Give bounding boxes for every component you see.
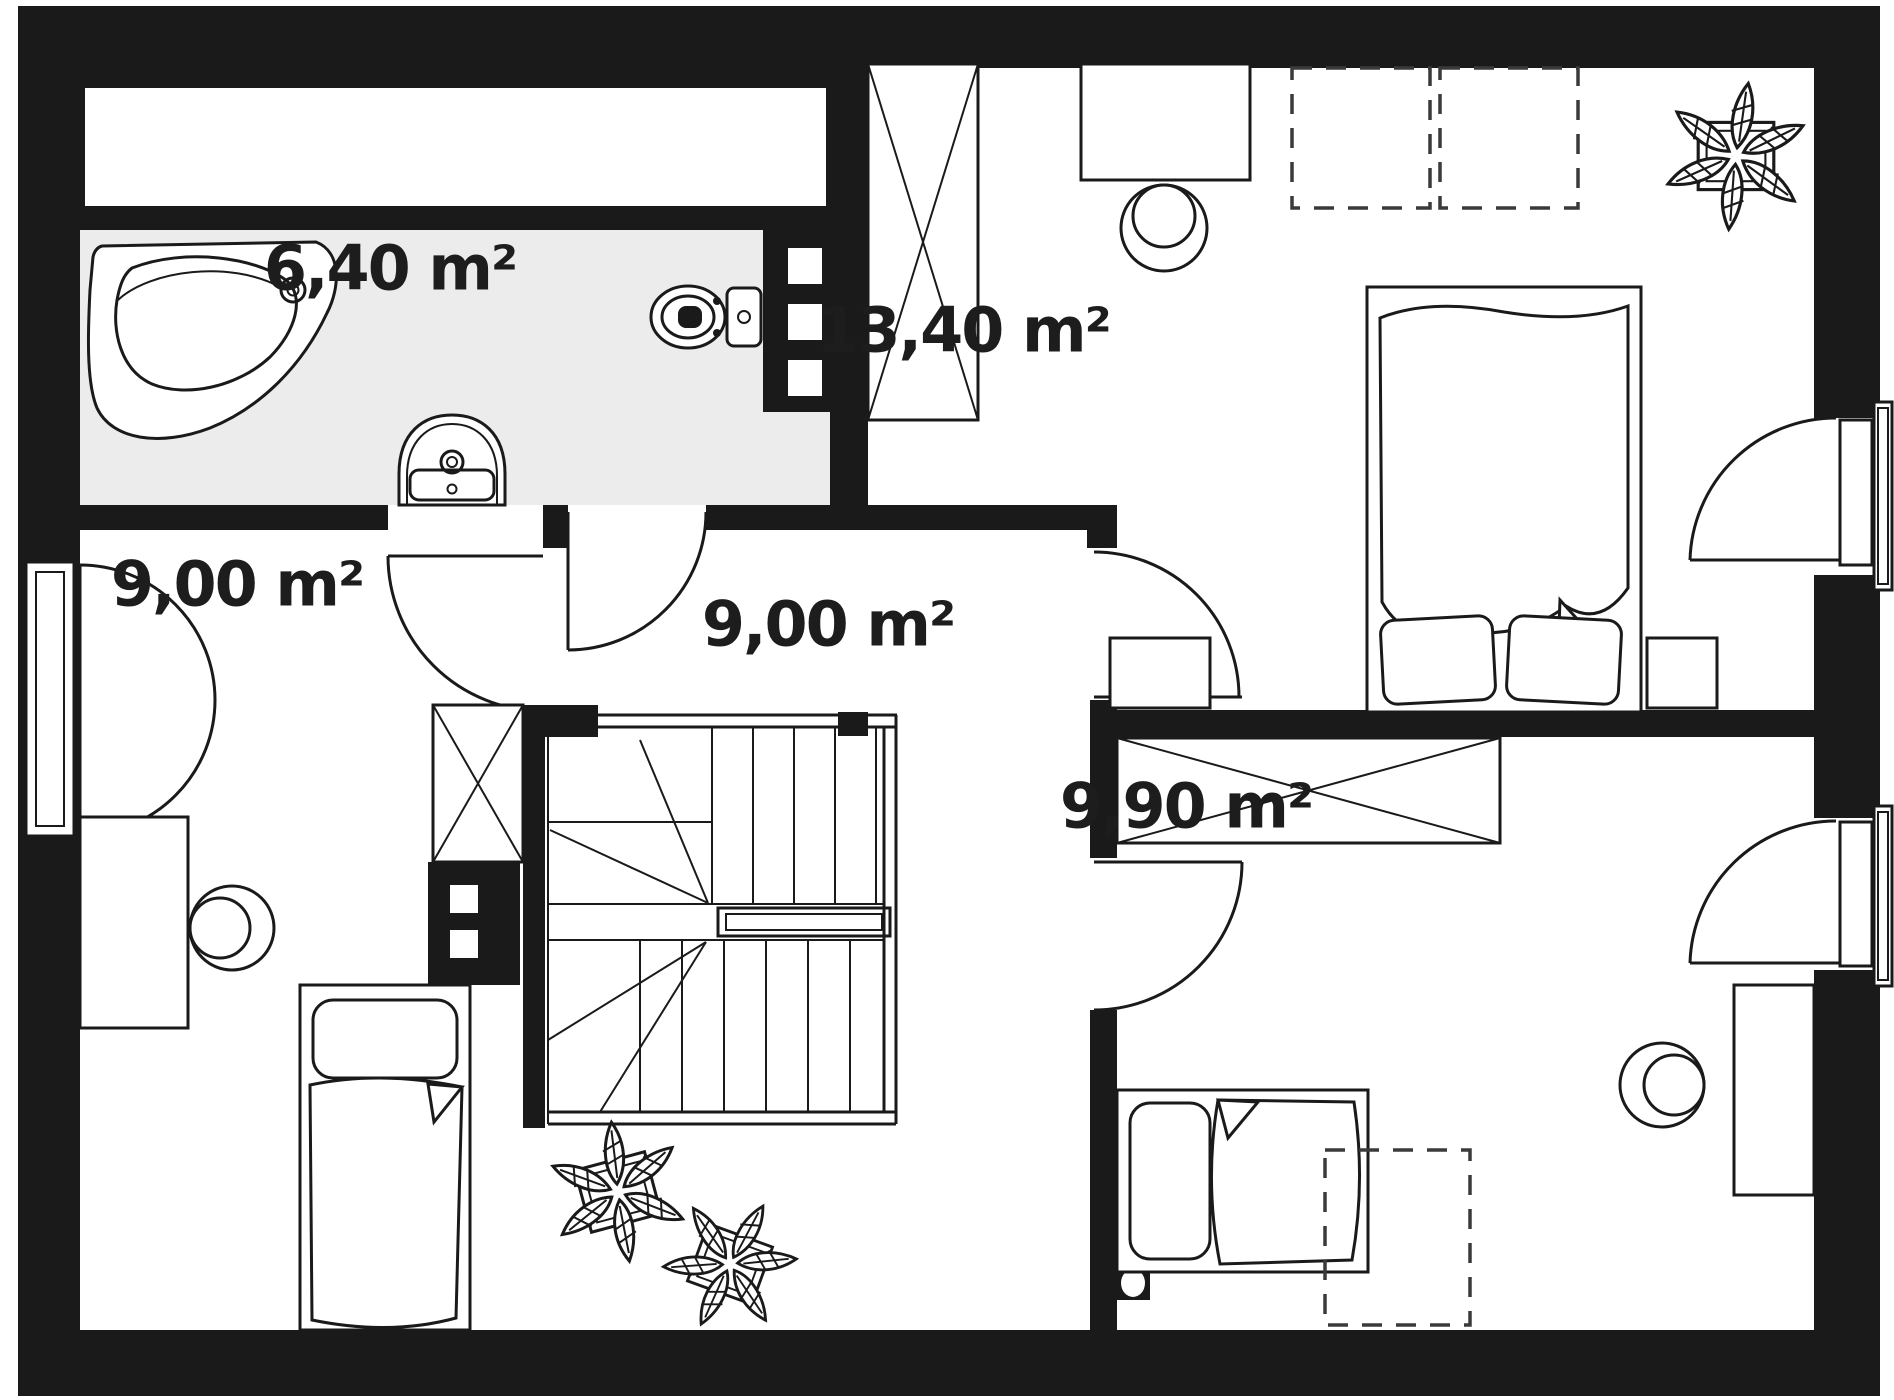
sink-icon	[399, 415, 505, 505]
room-area-label-bathroom: 6,40 m²	[264, 232, 516, 305]
floor-plan: 6,40 m² 13,40 m² 9,00 m² 9,00 m² 9,90 m²	[0, 0, 1894, 1400]
wall-jamb-2	[1087, 530, 1117, 548]
desk-left-room	[80, 817, 188, 1028]
nightstand-right	[1647, 638, 1717, 708]
wardrobe-bedroom-top	[868, 64, 978, 420]
desk-bedroom-top	[1081, 64, 1250, 180]
wall-jamb-1	[543, 505, 568, 548]
wall-hall-right-b	[1090, 1010, 1117, 1330]
wall-stair-side	[523, 705, 545, 1128]
wall-bottom	[18, 1330, 1880, 1396]
double-bed	[1367, 287, 1641, 712]
single-bed-left	[300, 985, 470, 1330]
room-area-label-bedroom-bottom: 9,90 m²	[1060, 770, 1312, 843]
skylight-dashed-1	[1292, 68, 1430, 208]
plant-under-stairs-1	[534, 1106, 701, 1277]
door-left-room	[388, 556, 543, 711]
chair-bedroom-bottom	[1620, 1043, 1704, 1127]
stair-newel	[838, 712, 868, 736]
room-area-label-bedroom-top: 13,40 m²	[816, 294, 1109, 367]
wall-right-lower	[1814, 970, 1880, 1396]
window-bedroom-bottom	[1690, 806, 1892, 986]
window-bedroom-top	[1690, 402, 1892, 590]
toilet-icon	[651, 286, 761, 348]
door-bathroom	[568, 512, 706, 650]
door-bedroom-bottom	[1094, 862, 1242, 1010]
nightstand-left	[1110, 638, 1210, 708]
wall-right-upper	[1814, 6, 1880, 418]
wardrobe-left-room	[433, 705, 523, 862]
chimney	[428, 862, 520, 985]
floor-plan-drawing	[0, 0, 1894, 1400]
staircase	[548, 712, 897, 1124]
wall-bedrooms-divider	[1117, 710, 1814, 737]
room-area-label-bedroom-left: 9,00 m²	[111, 548, 363, 621]
dormer-niche	[85, 88, 826, 206]
wall-right-middle	[1814, 575, 1880, 818]
wall-hall-top-b	[706, 505, 830, 530]
wall-hall-top-a	[80, 505, 388, 530]
single-bed-bottom	[1117, 1090, 1368, 1272]
skylight-dashed-2	[1440, 68, 1578, 208]
chair-bedroom-top	[1121, 185, 1207, 271]
wall-hall-top-c	[868, 505, 1117, 530]
room-area-label-hallway: 9,00 m²	[702, 588, 954, 661]
plant-under-stairs-2	[646, 1179, 813, 1349]
desk-bedroom-bottom	[1734, 985, 1814, 1195]
plant-top-right	[1665, 82, 1807, 230]
chair-left-room	[190, 886, 274, 970]
